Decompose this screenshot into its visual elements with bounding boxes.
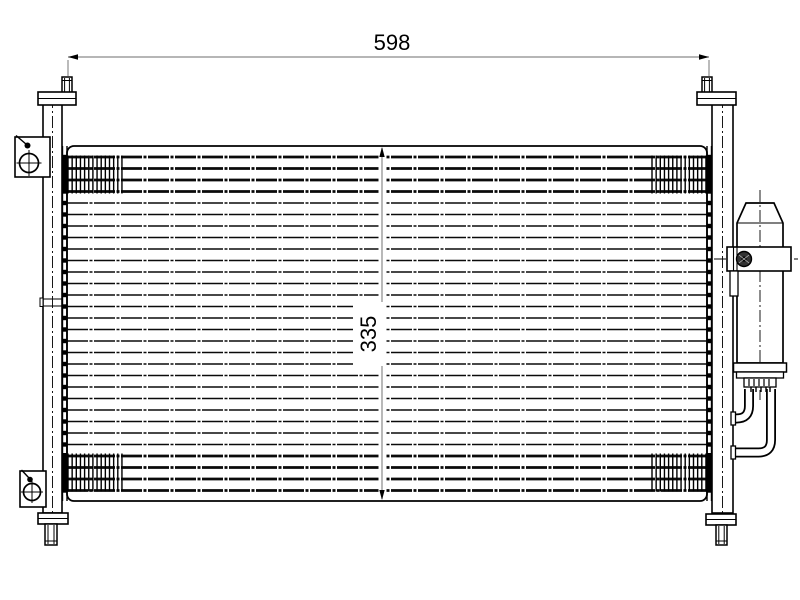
dimension-width: 598 (68, 30, 709, 76)
dimension-arrow-left-icon (68, 54, 78, 60)
clip-dot-icon (25, 143, 31, 149)
mounting-bracket-top-left (15, 136, 50, 178)
technical-drawing-canvas: 598 (0, 0, 800, 600)
drier-bottom-ring-2 (737, 372, 784, 378)
drier-connecting-pipes (731, 389, 771, 459)
pipe-lower-flange (731, 446, 736, 459)
clip-dot-icon (27, 477, 33, 483)
tube-end-joints (56, 155, 719, 493)
left-tank-seam-tab (40, 298, 43, 307)
fin-hatch (58, 155, 717, 492)
tube-lines (67, 157, 707, 491)
bottom-left-mounting-pin (45, 524, 57, 545)
bottom-right-mounting-pin (716, 525, 727, 545)
dimension-width-label: 598 (374, 30, 411, 55)
dimension-arrow-down-icon (379, 490, 384, 500)
pipe-upper-flange (731, 412, 736, 425)
core-end-plates (63, 146, 712, 501)
clamp-tab (730, 271, 738, 296)
mounting-bracket-bottom-left (20, 470, 46, 507)
top-right-mounting-pin (702, 77, 712, 93)
core-frame (67, 146, 707, 501)
dimension-height-label: 335 (356, 316, 381, 353)
condenser-core (56, 146, 719, 501)
drier-bottom-ring-1 (734, 363, 787, 372)
dimension-arrow-right-icon (699, 54, 709, 60)
condenser-drawing: 598 (0, 0, 800, 600)
dimension-height: 335 (353, 147, 385, 500)
top-left-mounting-pin (62, 77, 72, 93)
